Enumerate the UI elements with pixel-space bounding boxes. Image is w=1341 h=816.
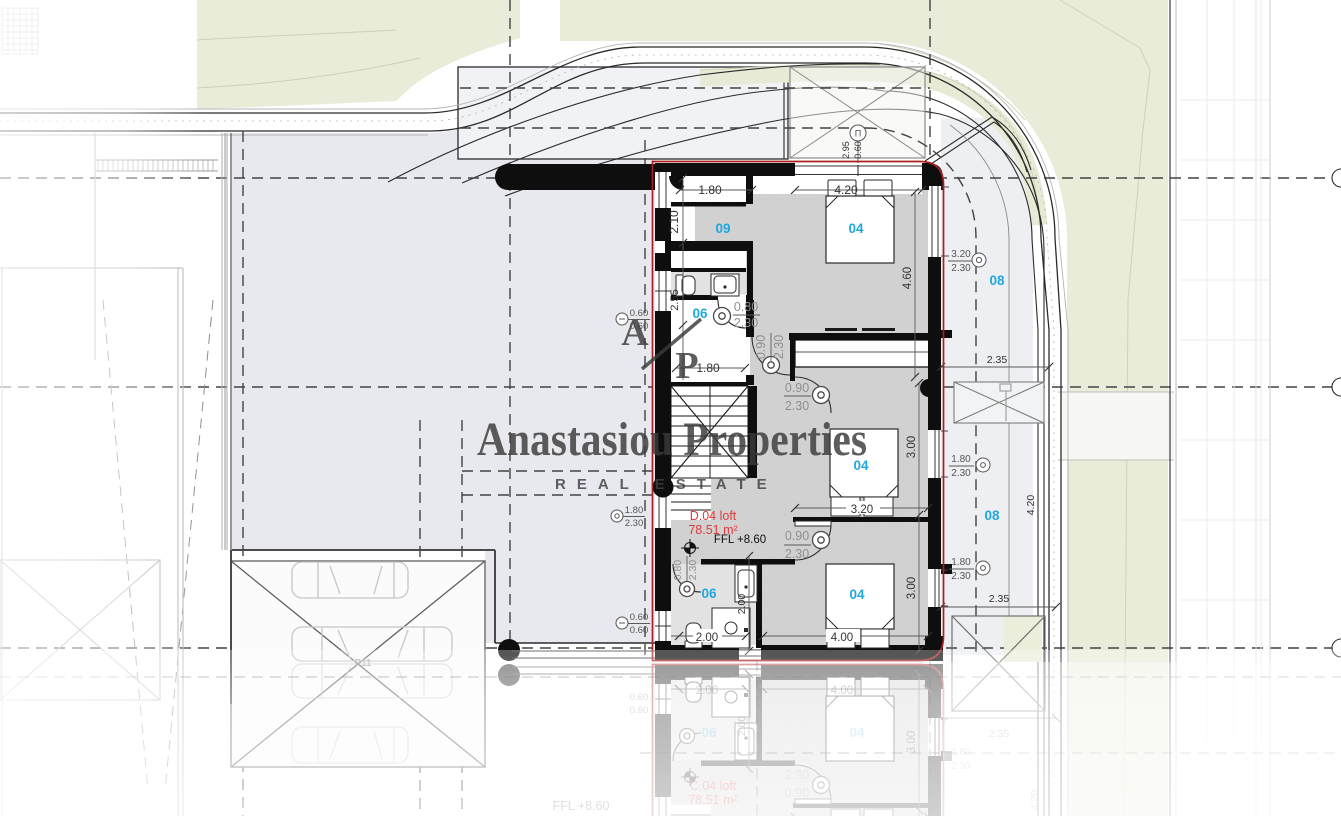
svg-text:REAL ESTATE: REAL ESTATE — [555, 476, 778, 493]
svg-text:08: 08 — [989, 273, 1005, 288]
svg-text:3.00: 3.00 — [906, 577, 918, 599]
svg-text:04: 04 — [848, 221, 864, 236]
svg-text:4.00: 4.00 — [831, 632, 853, 644]
svg-text:2.95: 2.95 — [841, 141, 851, 159]
svg-text:2.30: 2.30 — [625, 518, 644, 529]
svg-text:Anastasiou Properties: Anastasiou Properties — [477, 413, 867, 466]
svg-text:08: 08 — [984, 508, 1000, 523]
svg-text:2.30: 2.30 — [687, 560, 699, 581]
svg-text:4.20: 4.20 — [1025, 495, 1037, 516]
svg-text:2.35: 2.35 — [987, 354, 1008, 366]
svg-text:Π: Π — [855, 129, 862, 139]
svg-text:2.10: 2.10 — [667, 210, 681, 234]
svg-text:1.80: 1.80 — [698, 183, 722, 197]
svg-text:2.30: 2.30 — [785, 399, 809, 413]
svg-text:3.00: 3.00 — [906, 436, 918, 458]
svg-text:1.80: 1.80 — [951, 557, 971, 568]
svg-text:06: 06 — [701, 586, 717, 601]
svg-text:4.20: 4.20 — [834, 183, 858, 197]
svg-text:3.20: 3.20 — [951, 249, 971, 260]
svg-text:2.00: 2.00 — [696, 632, 718, 644]
svg-text:2.30: 2.30 — [951, 571, 971, 582]
svg-text:2.30: 2.30 — [772, 335, 786, 359]
svg-text:1.80: 1.80 — [951, 454, 971, 465]
svg-text:2.30: 2.30 — [951, 468, 971, 479]
svg-text:0.80: 0.80 — [734, 300, 758, 314]
svg-text:0.90: 0.90 — [785, 529, 809, 543]
svg-text:2.30: 2.30 — [734, 316, 758, 330]
svg-text:1.80: 1.80 — [625, 505, 644, 516]
svg-text:2.35: 2.35 — [989, 593, 1010, 605]
svg-text:A: A — [621, 312, 649, 354]
svg-text:0.60: 0.60 — [630, 612, 649, 623]
svg-text:0.90: 0.90 — [785, 381, 809, 395]
svg-text:0.80: 0.80 — [672, 560, 684, 581]
svg-text:D.04 loft: D.04 loft — [690, 509, 737, 523]
svg-text:FFL +8.60: FFL +8.60 — [714, 534, 766, 546]
svg-text:0.60: 0.60 — [630, 625, 649, 636]
svg-text:2.30: 2.30 — [951, 263, 971, 274]
svg-text:1.80: 1.80 — [696, 361, 720, 375]
svg-text:04: 04 — [849, 587, 865, 602]
svg-text:0.60: 0.60 — [853, 141, 863, 159]
svg-text:P: P — [675, 345, 698, 387]
svg-text:2.55: 2.55 — [669, 289, 681, 310]
svg-text:4.60: 4.60 — [902, 267, 914, 289]
svg-text:0.90: 0.90 — [754, 335, 768, 359]
svg-text:09: 09 — [715, 221, 730, 236]
svg-text:2.30: 2.30 — [785, 547, 809, 561]
svg-text:2.00: 2.00 — [736, 594, 748, 615]
svg-text:3.20: 3.20 — [851, 504, 873, 516]
